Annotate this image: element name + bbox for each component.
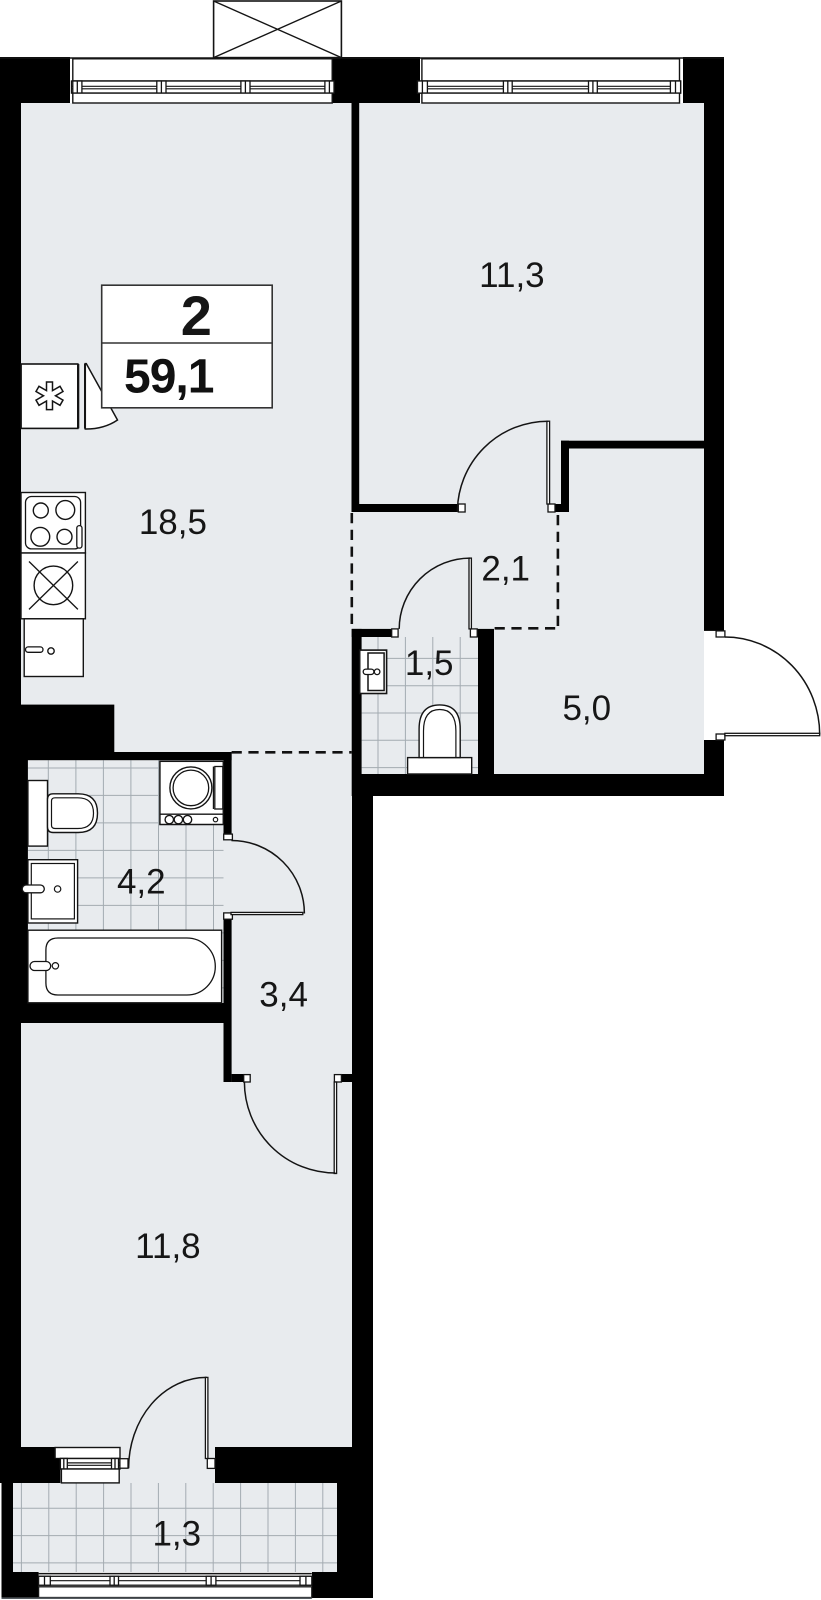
svg-text:1,5: 1,5: [405, 644, 454, 683]
svg-text:11,8: 11,8: [135, 1227, 201, 1266]
svg-text:5,0: 5,0: [562, 689, 611, 728]
svg-text:59,1: 59,1: [124, 351, 214, 404]
svg-text:2: 2: [181, 284, 212, 347]
svg-text:4,2: 4,2: [117, 862, 166, 901]
svg-text:1,3: 1,3: [152, 1514, 201, 1553]
svg-text:11,3: 11,3: [479, 256, 545, 295]
svg-text:2,1: 2,1: [481, 550, 530, 589]
svg-text:18,5: 18,5: [139, 503, 207, 542]
svg-text:3,4: 3,4: [259, 976, 308, 1015]
